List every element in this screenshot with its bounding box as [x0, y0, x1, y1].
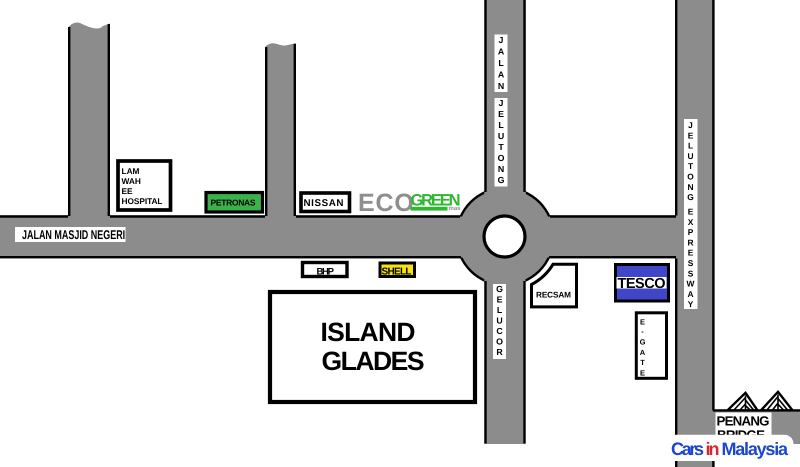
svg-text:E: E	[498, 109, 504, 119]
svg-text:L: L	[498, 120, 504, 130]
svg-text:WAH: WAH	[122, 176, 141, 186]
svg-text:TESCO: TESCO	[618, 276, 666, 292]
svg-text:G: G	[687, 192, 694, 202]
svg-text:S: S	[688, 268, 694, 278]
svg-text:E: E	[688, 248, 694, 258]
svg-text:J: J	[499, 98, 504, 108]
svg-text:O: O	[496, 337, 503, 347]
svg-text:N: N	[498, 164, 504, 174]
svg-text:C: C	[496, 326, 503, 336]
svg-text:E: E	[640, 369, 645, 378]
svg-text:mas: mas	[449, 206, 462, 212]
svg-text:BHP: BHP	[316, 267, 334, 278]
svg-text:NISSAN: NISSAN	[304, 198, 344, 209]
svg-text:T: T	[688, 161, 694, 171]
svg-text:G: G	[496, 284, 503, 294]
svg-text:Y: Y	[688, 299, 694, 309]
svg-text:W: W	[687, 279, 695, 289]
svg-text:N: N	[687, 182, 693, 192]
svg-text:GLADES: GLADES	[322, 346, 425, 376]
svg-text:LAM: LAM	[122, 166, 140, 176]
svg-text:EE: EE	[122, 186, 134, 196]
svg-text:R: R	[687, 237, 693, 247]
svg-text:E: E	[497, 295, 503, 305]
svg-text:O: O	[498, 153, 505, 163]
svg-text:E: E	[688, 130, 694, 140]
svg-text:E: E	[640, 318, 645, 327]
svg-text:T: T	[640, 358, 645, 367]
svg-text:O: O	[687, 172, 694, 182]
svg-text:L: L	[688, 141, 693, 151]
svg-text:PETRONAS: PETRONAS	[211, 198, 256, 208]
svg-text:U: U	[687, 151, 693, 161]
svg-text:SHELL: SHELL	[382, 267, 412, 278]
svg-text:J: J	[499, 35, 504, 45]
svg-text:G: G	[640, 338, 646, 347]
svg-text:in: in	[706, 439, 720, 459]
svg-text:A: A	[498, 70, 505, 80]
svg-text:L: L	[498, 58, 504, 68]
svg-text:A: A	[687, 289, 693, 299]
svg-text:L: L	[497, 305, 503, 315]
svg-text:U: U	[498, 131, 504, 141]
svg-text:A: A	[498, 47, 505, 57]
svg-text:JALAN MASJID NEGERI: JALAN MASJID NEGERI	[22, 229, 125, 242]
svg-text:Malaysia: Malaysia	[722, 439, 789, 459]
svg-text:PENANG: PENANG	[717, 413, 770, 428]
svg-text:P: P	[688, 227, 694, 237]
svg-text:E: E	[688, 207, 694, 217]
svg-text:S: S	[688, 258, 694, 268]
svg-text:Cars: Cars	[671, 439, 704, 459]
svg-text:X: X	[688, 217, 694, 227]
svg-text:ECO: ECO	[358, 189, 415, 217]
svg-text:R: R	[496, 347, 503, 357]
svg-text:G: G	[498, 175, 505, 185]
svg-text:ISLAND: ISLAND	[321, 317, 416, 347]
svg-text:J: J	[688, 120, 693, 130]
svg-text:RECSAM: RECSAM	[536, 291, 571, 300]
svg-text:N: N	[498, 81, 504, 91]
svg-text:HOSPITAL: HOSPITAL	[122, 196, 163, 206]
svg-text:T: T	[498, 142, 504, 152]
svg-text:U: U	[496, 316, 502, 326]
svg-text:A: A	[640, 348, 646, 357]
